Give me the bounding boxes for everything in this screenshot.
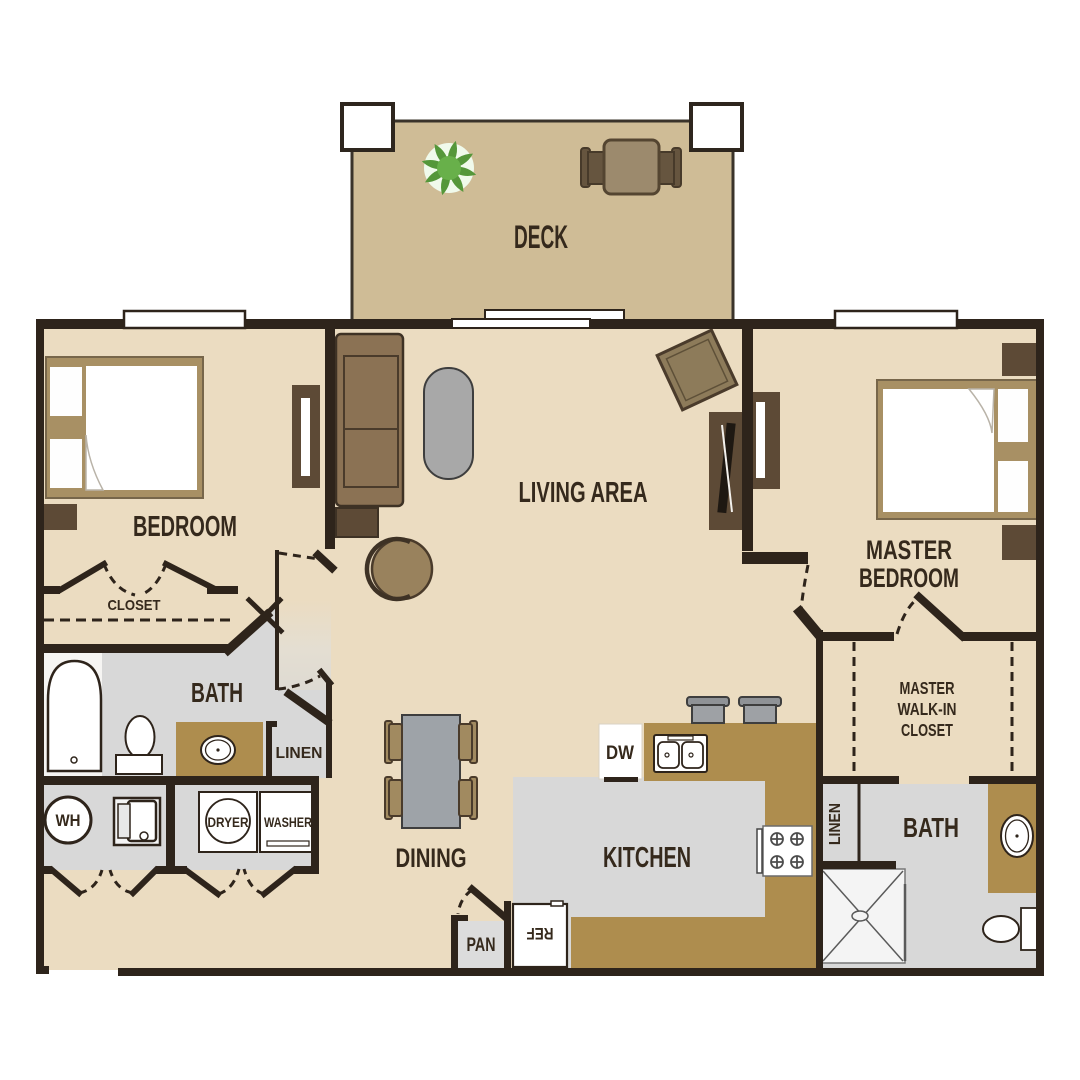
svg-text:MASTER: MASTER bbox=[866, 535, 952, 565]
svg-text:LIVING AREA: LIVING AREA bbox=[519, 477, 648, 509]
svg-text:WASHER: WASHER bbox=[264, 814, 312, 830]
svg-text:BATH: BATH bbox=[191, 677, 243, 708]
svg-text:MASTER: MASTER bbox=[900, 678, 955, 698]
svg-text:DW: DW bbox=[606, 743, 634, 764]
svg-text:BEDROOM: BEDROOM bbox=[859, 563, 959, 593]
svg-text:PAN: PAN bbox=[467, 935, 496, 956]
svg-text:CLOSET: CLOSET bbox=[901, 720, 953, 740]
svg-text:LINEN: LINEN bbox=[827, 803, 844, 845]
svg-text:BEDROOM: BEDROOM bbox=[133, 511, 237, 543]
svg-text:DINING: DINING bbox=[396, 843, 467, 873]
svg-text:KITCHEN: KITCHEN bbox=[603, 842, 691, 874]
svg-text:BATH: BATH bbox=[903, 812, 959, 843]
svg-text:DECK: DECK bbox=[514, 219, 568, 255]
svg-text:DRYER: DRYER bbox=[208, 814, 249, 830]
svg-text:REF: REF bbox=[527, 924, 554, 943]
svg-text:CLOSET: CLOSET bbox=[108, 597, 161, 614]
svg-text:WH: WH bbox=[56, 811, 81, 830]
svg-text:LINEN: LINEN bbox=[276, 745, 323, 762]
svg-text:WALK-IN: WALK-IN bbox=[898, 699, 957, 719]
